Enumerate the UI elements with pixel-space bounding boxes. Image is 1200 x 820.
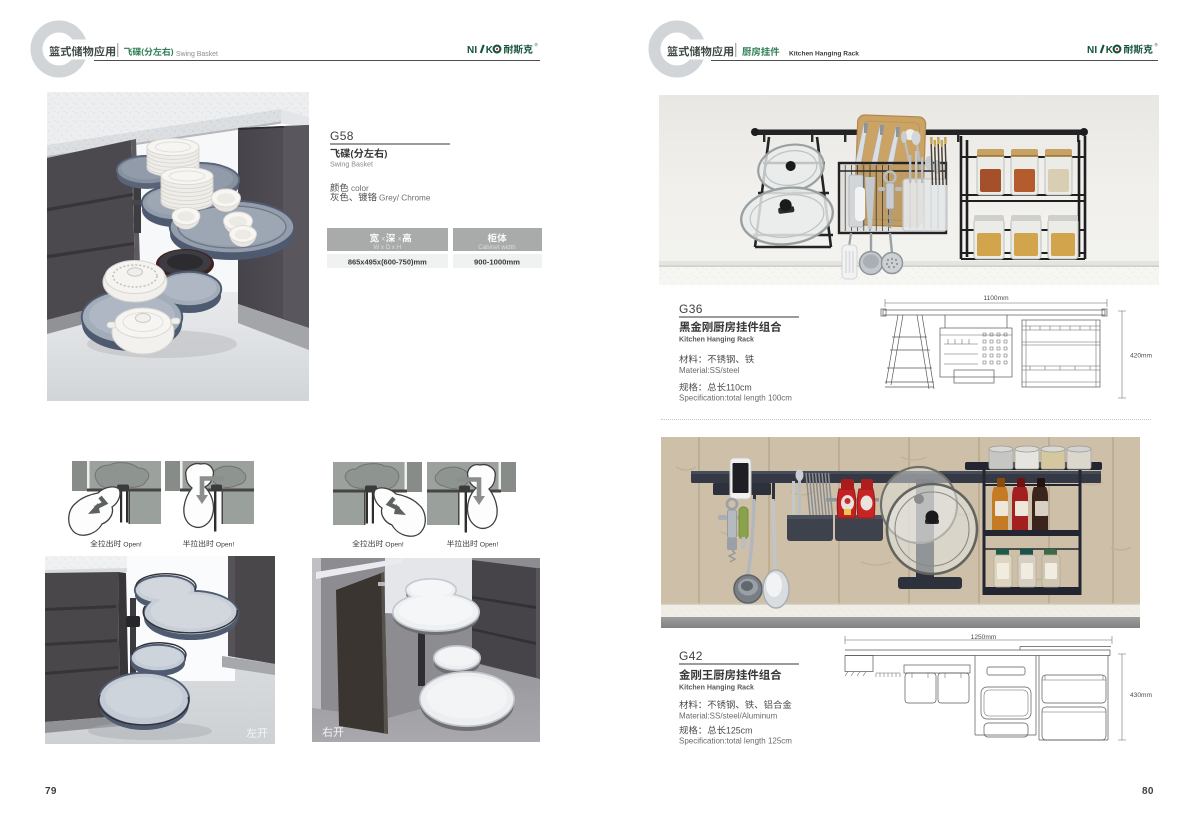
svg-text:G36: G36 (679, 302, 703, 316)
svg-text:K: K (1106, 45, 1114, 56)
svg-text:Open!: Open! (216, 542, 235, 549)
svg-text:Material:SS/steel: Material:SS/steel (679, 366, 740, 375)
svg-text:Open!: Open! (123, 542, 142, 549)
svg-text:430mm: 430mm (1130, 692, 1152, 699)
svg-text:Specification:total length 125: Specification:total length 125cm (679, 737, 792, 746)
svg-text:K: K (486, 45, 494, 56)
svg-text:110cm: 110cm (726, 383, 752, 393)
svg-text:Open!: Open! (480, 542, 499, 549)
svg-text:): ) (171, 47, 174, 57)
svg-text:420mm: 420mm (1130, 353, 1152, 360)
svg-text:x: x (382, 236, 386, 243)
svg-text:Kitchen Hanging Rack: Kitchen Hanging Rack (789, 51, 859, 58)
svg-text:color: color (351, 184, 369, 193)
svg-text:1250mm: 1250mm (971, 634, 997, 641)
svg-text:®: ® (535, 42, 539, 48)
svg-text:NI: NI (1087, 45, 1097, 56)
svg-text:125cm: 125cm (726, 726, 752, 736)
svg-text:Grey/ Chrome: Grey/ Chrome (379, 194, 431, 203)
svg-text:NI: NI (467, 45, 477, 56)
svg-text:Material:SS/steel/Aluminum: Material:SS/steel/Aluminum (679, 712, 778, 721)
svg-text:Specification:total length 100: Specification:total length 100cm (679, 394, 792, 403)
svg-text:G42: G42 (679, 649, 703, 663)
svg-text:): ) (384, 149, 387, 160)
svg-text:Kitchen Hanging Rack: Kitchen Hanging Rack (679, 685, 754, 692)
svg-text:865x495x(600-750)mm: 865x495x(600-750)mm (348, 257, 427, 266)
svg-text:1100mm: 1100mm (983, 295, 1009, 302)
svg-text:Cabinet width: Cabinet width (478, 244, 516, 251)
svg-text:79: 79 (45, 786, 57, 797)
svg-text:Swing Basket: Swing Basket (176, 51, 218, 58)
svg-text:W x D x H: W x D x H (373, 244, 401, 251)
svg-text:(: ( (350, 149, 354, 160)
svg-text:Kitchen Hanging Rack: Kitchen Hanging Rack (679, 337, 754, 344)
svg-text:®: ® (1155, 42, 1159, 48)
svg-text:Swing Basket: Swing Basket (330, 161, 373, 169)
svg-text:x: x (398, 236, 402, 243)
svg-text:Open!: Open! (385, 542, 404, 549)
svg-text:G58: G58 (330, 129, 354, 143)
svg-text:(: ( (141, 47, 144, 57)
svg-text:80: 80 (1142, 786, 1154, 797)
svg-text:900-1000mm: 900-1000mm (474, 257, 520, 266)
